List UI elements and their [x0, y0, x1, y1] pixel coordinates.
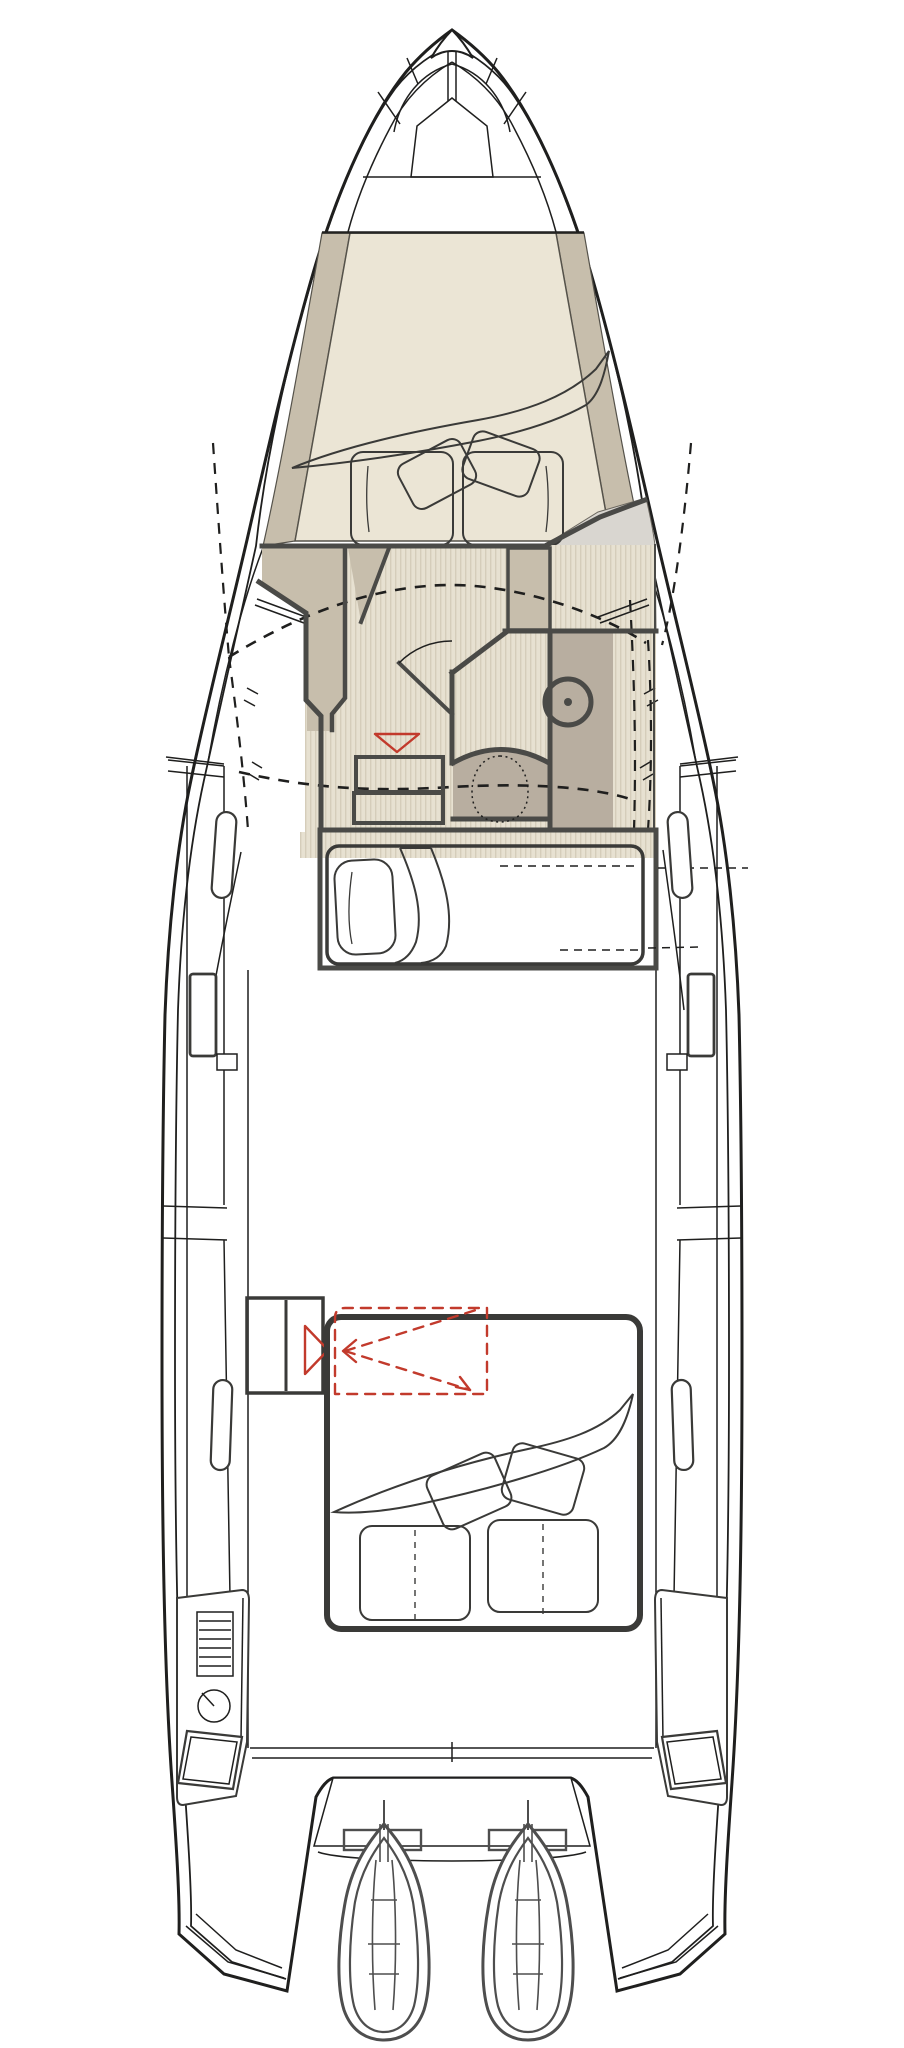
deck-plan-drawing: [0, 0, 904, 2048]
boat-floor-plan-canvas: [0, 0, 904, 2048]
toilet-alcove: [453, 750, 549, 818]
locker-block: [508, 548, 550, 630]
gunwale-panel-port: [190, 974, 216, 1056]
stern-console-starboard: [655, 1590, 727, 1805]
gunwale-panel-starboard: [688, 974, 714, 1056]
sink-drain-icon: [564, 698, 572, 706]
cleat-mid-starboard: [671, 1380, 693, 1471]
vanity-counter: [550, 633, 613, 832]
cleat-mid-port: [210, 1380, 232, 1471]
stern-console-port: [177, 1590, 249, 1805]
